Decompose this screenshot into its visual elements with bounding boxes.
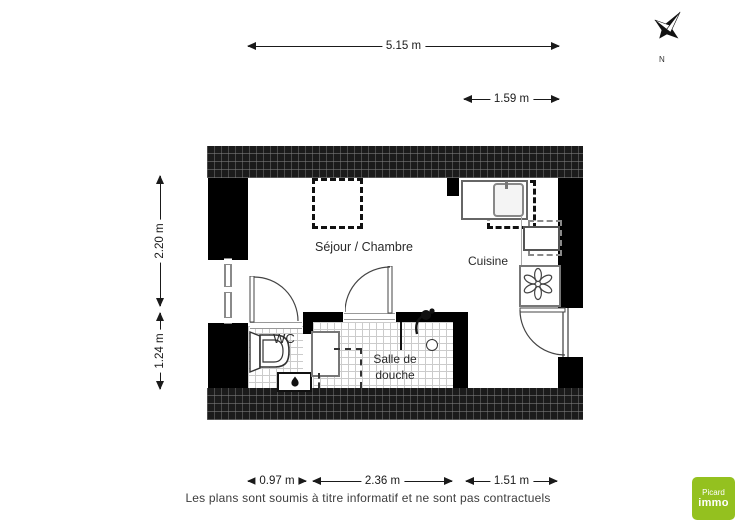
- sink-icon: [493, 183, 524, 217]
- dim-left-upper-height-label: 2.20 m: [154, 219, 166, 262]
- dim-bottom-right-label: 1.51 m: [490, 475, 533, 487]
- entrance-door-arc: [518, 305, 568, 357]
- room-label-kitchen: Cuisine: [460, 254, 516, 268]
- dim-left-lower-height: 1.24 m: [152, 312, 168, 390]
- dim-top-right-width: 1.59 m: [463, 92, 560, 106]
- extractor-fan-icon: [521, 267, 555, 301]
- dim-left-upper-height: 2.20 m: [152, 175, 168, 307]
- shower-door-arc: [345, 266, 395, 314]
- compass-north-label: N: [659, 55, 665, 64]
- shower-door-sill: [344, 313, 395, 320]
- agency-logo-line1: Picard: [702, 489, 725, 497]
- roof-hatch-top: [207, 146, 583, 178]
- ceiling-height-dashed-line-top: [334, 348, 362, 350]
- skylight-dashed: [312, 178, 363, 229]
- dim-left-lower-height-label: 1.24 m: [154, 329, 166, 372]
- dim-bottom-center: 2.36 m: [312, 474, 453, 488]
- dim-bottom-left-label: 0.97 m: [255, 475, 298, 487]
- shower-head-icon: [412, 308, 438, 336]
- extractor-fan-box: [519, 265, 561, 307]
- window-symbol: [224, 259, 232, 323]
- faucet-icon: [505, 181, 508, 189]
- wall-shower-right: [453, 312, 468, 388]
- dim-bottom-right: 1.51 m: [465, 474, 558, 488]
- dim-top-width-label: 5.15 m: [382, 40, 425, 52]
- room-label-shower: Salle de douche: [364, 352, 426, 383]
- room-label-wc: WC: [265, 331, 303, 346]
- wall-shower-top-left: [303, 312, 343, 322]
- ceiling-height-dashed-line-mid: [360, 348, 362, 388]
- dim-bottom-left: 0.97 m: [247, 474, 307, 488]
- dim-top-width: 5.15 m: [247, 39, 560, 53]
- room-label-living: Séjour / Chambre: [308, 240, 420, 254]
- wc-door-arc: [247, 276, 300, 323]
- drain-icon: [426, 339, 438, 351]
- dim-top-right-width-label: 1.59 m: [490, 93, 533, 105]
- ceiling-height-dashed-line-left: [318, 373, 320, 388]
- wall-left-upper: [208, 178, 248, 260]
- water-heater: [277, 372, 312, 392]
- wall-right-lower: [558, 357, 583, 388]
- floor-plan-page: N 5.15 m 1.59 m 2.20 m 1.24 m 0.97 m 2.3…: [0, 0, 736, 521]
- wc-door-sill: [250, 322, 302, 329]
- wall-left-lower: [208, 323, 248, 388]
- compass-north-icon: N: [628, 4, 700, 66]
- appliance-icon: [523, 226, 560, 251]
- dim-bottom-center-label: 2.36 m: [361, 475, 404, 487]
- disclaimer-text: Les plans sont soumis à titre informatif…: [0, 491, 736, 505]
- shower-washbasin: [311, 331, 340, 377]
- kitchen-wall-stub: [447, 178, 459, 196]
- roof-hatch-bottom: [207, 388, 583, 420]
- agency-logo-line2: immo: [698, 498, 729, 509]
- water-heater-flame-icon: [290, 376, 300, 388]
- counter-edge-line: [521, 216, 522, 265]
- agency-logo: Picard immo: [692, 477, 735, 520]
- shower-screen: [400, 322, 402, 350]
